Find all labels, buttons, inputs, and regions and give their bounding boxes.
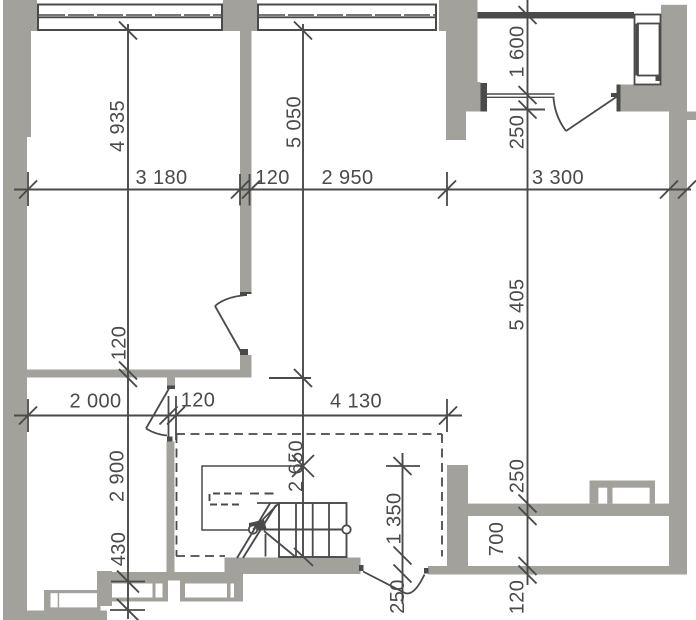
svg-text:120: 120 [507, 580, 529, 615]
svg-text:250: 250 [507, 459, 529, 494]
svg-text:5 050: 5 050 [284, 96, 306, 148]
svg-text:1 350: 1 350 [384, 492, 406, 544]
svg-text:700: 700 [486, 522, 508, 557]
svg-text:2 900: 2 900 [107, 450, 129, 502]
svg-text:1 600: 1 600 [507, 25, 529, 77]
svg-text:430: 430 [108, 532, 130, 567]
svg-text:250: 250 [387, 579, 409, 614]
svg-text:250: 250 [507, 115, 529, 150]
svg-text:4 935: 4 935 [107, 100, 129, 152]
svg-text:4 130: 4 130 [330, 391, 382, 413]
svg-text:5 405: 5 405 [507, 278, 529, 330]
svg-text:120: 120 [255, 167, 290, 189]
svg-text:2 950: 2 950 [321, 167, 373, 189]
svg-text:120: 120 [109, 326, 131, 361]
svg-text:3 180: 3 180 [135, 167, 187, 189]
svg-text:2 000: 2 000 [69, 391, 121, 413]
svg-text:2 650: 2 650 [286, 440, 308, 492]
svg-text:3 300: 3 300 [532, 167, 584, 189]
svg-text:120: 120 [181, 390, 216, 412]
